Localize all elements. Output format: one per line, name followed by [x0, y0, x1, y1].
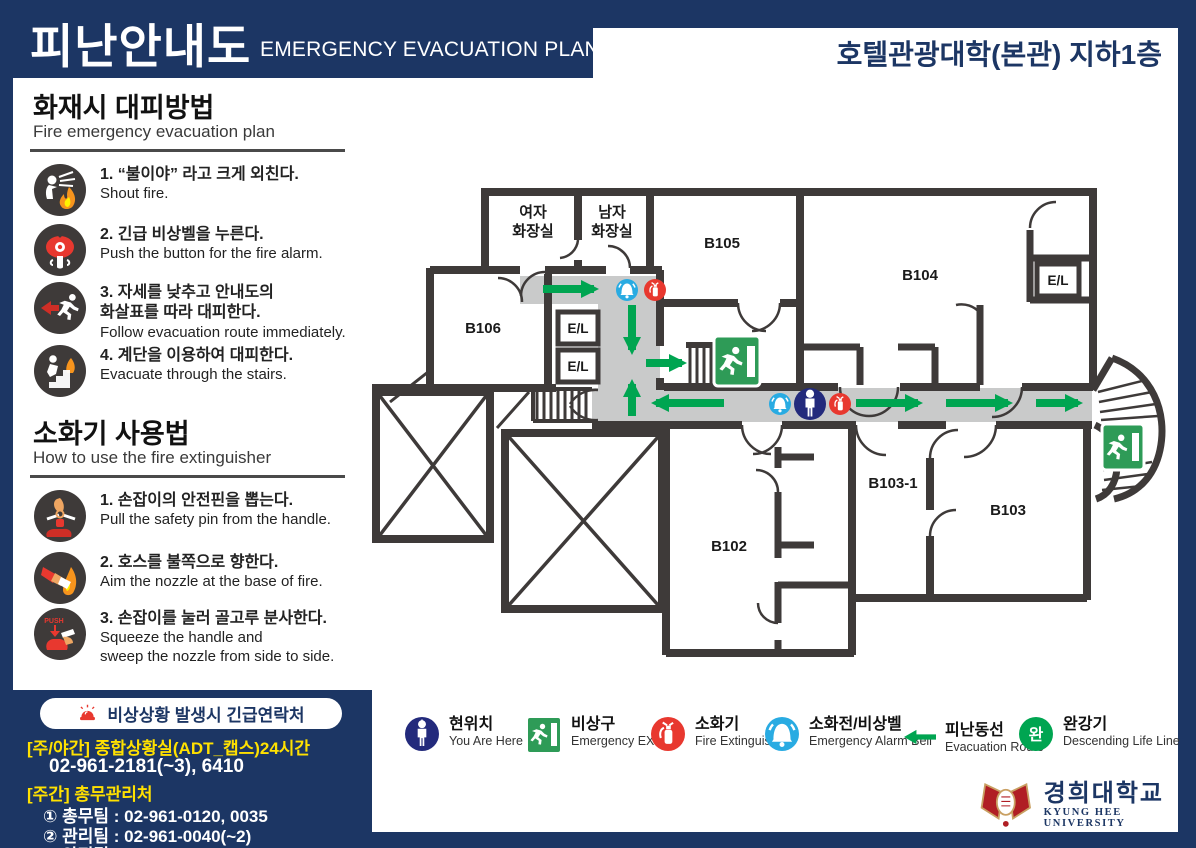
university-crest-icon: [978, 778, 1034, 832]
poster-title-english: EMERGENCY EVACUATION PLAN: [260, 38, 600, 62]
floor-plan: E/L E/L E/L: [355, 182, 1175, 682]
room-label-men: 화장실: [591, 222, 632, 240]
step-text-ko: 3. 자세를 낮추고 안내도의 화살표를 따라 대피한다.: [100, 283, 346, 324]
poster-title-korean: 피난안내도: [30, 8, 251, 77]
fire-step-1: 1. “불이야” 라고 크게 외친다. Shout fire.: [33, 163, 358, 217]
shout-fire-icon: [33, 163, 87, 217]
room-label-women: 화장실: [512, 222, 553, 240]
emergency-exit-icon: [526, 716, 562, 754]
fire-extinguisher-marker: [644, 279, 666, 301]
room-label-b102: B102: [711, 538, 747, 555]
aim-nozzle-icon: [33, 551, 87, 605]
emergency-contact-box: 비상상황 발생시 긴급연락처 [주/야간] 종합상황실(ADT_캡스)24시간 …: [13, 690, 372, 848]
section-divider: [30, 149, 345, 152]
svg-text:완: 완: [1029, 726, 1044, 744]
emergency-contact-title-pill: 비상상황 발생시 긴급연락처: [40, 698, 342, 729]
extinguisher-title: 소화기 사용법: [33, 412, 190, 451]
alarm-bell-marker: [616, 279, 638, 301]
elevator-label: E/L: [567, 321, 588, 336]
room-label-b106: B106: [465, 320, 501, 337]
extinguisher-subtitle: How to use the fire extinguisher: [33, 448, 271, 468]
step-text-ko: 3. 손잡이를 눌러 골고루 분사한다.: [100, 609, 334, 629]
section-divider: [30, 475, 345, 478]
room-label-women: 여자: [519, 204, 547, 221]
contact-line: 02-961-2181(~3), 6410: [49, 756, 244, 778]
fire-step-4: 4. 계단을 이용하여 대피한다. Evacuate through the s…: [33, 344, 358, 398]
university-name-korean: 경희대학교: [1044, 781, 1196, 806]
extinguisher-step-1: 1. 손잡이의 안전핀을 뽑는다. Pull the safety pin fr…: [33, 489, 358, 543]
left-border: [0, 0, 13, 848]
you-are-here-marker: [794, 388, 826, 420]
step-text-ko: 4. 계단을 이용하여 대피한다.: [100, 346, 293, 366]
evacuation-plan-poster: 피난안내도 EMERGENCY EVACUATION PLAN 호텔관광대학(본…: [0, 0, 1196, 848]
fire-evacuation-title: 화재시 대피방법: [33, 86, 214, 125]
descending-life-line-icon: 완: [1018, 716, 1054, 752]
siren-icon: [77, 703, 98, 724]
step-text-ko: 2. 긴급 비상벨을 누른다.: [100, 225, 323, 245]
pull-pin-icon: [33, 489, 87, 543]
you-are-here-icon: [404, 716, 440, 752]
step-text-en: Aim the nozzle at the base of fire.: [100, 573, 323, 591]
alarm-bell-icon: [764, 716, 800, 752]
step-text-en: Squeeze the handle and sweep the nozzle …: [100, 629, 334, 666]
alarm-bell-marker: [769, 393, 791, 415]
alarm-button-icon: [33, 223, 87, 277]
step-text-en: Pull the safety pin from the handle.: [100, 511, 331, 529]
fire-extinguisher-marker: [829, 393, 851, 415]
fire-evacuation-subtitle: Fire emergency evacuation plan: [33, 122, 275, 142]
step-text-en: Shout fire.: [100, 185, 299, 203]
step-text-ko: 2. 호스를 불쪽으로 향한다.: [100, 553, 323, 573]
room-label-b104: B104: [902, 267, 939, 284]
contact-line: ③ 안전팀 : 02-961-0119: [43, 841, 220, 848]
building-floor-title-box: 호텔관광대학(본관) 지하1층: [593, 28, 1178, 78]
step-text-en: Evacuate through the stairs.: [100, 366, 293, 384]
emergency-contact-title: 비상상황 발생시 긴급연락처: [107, 701, 304, 726]
follow-route-icon: [33, 281, 87, 335]
legend-you-are-here: 현위치You Are Here: [404, 716, 523, 752]
step-text-ko: 1. 손잡이의 안전핀을 뽑는다.: [100, 491, 331, 511]
building-floor-title: 호텔관광대학(본관) 지하1층: [837, 33, 1162, 73]
room-label-b103: B103: [990, 502, 1026, 519]
step-text-en: Follow evacuation route immediately.: [100, 324, 346, 342]
step-text-ko: 1. “불이야” 라고 크게 외친다.: [100, 165, 299, 185]
emergency-exit-sign-east: [1102, 424, 1144, 470]
elevator-label: E/L: [1047, 273, 1068, 288]
step-text-en: Push the button for the fire alarm.: [100, 245, 323, 263]
legend-emergency-exit: 비상구Emergency EXIT: [526, 716, 665, 754]
squeeze-handle-icon: PUSH: [33, 607, 87, 661]
room-label-b103-1: B103-1: [868, 475, 917, 492]
right-border: [1178, 0, 1196, 848]
elevator-label: E/L: [567, 359, 588, 374]
emergency-exit-sign-center: [714, 336, 760, 386]
room-label-b105: B105: [704, 235, 740, 252]
use-stairs-icon: [33, 344, 87, 398]
extinguisher-step-3: PUSH 3. 손잡이를 눌러 골고루 분사한다. Squeeze the ha…: [33, 607, 358, 666]
fire-extinguisher-icon: [650, 716, 686, 752]
svg-text:PUSH: PUSH: [44, 618, 63, 625]
extinguisher-step-2: 2. 호스를 불쪽으로 향한다. Aim the nozzle at the b…: [33, 551, 358, 605]
fire-step-2: 2. 긴급 비상벨을 누른다. Push the button for the …: [33, 223, 358, 277]
legend-descending-life-line: 완 완강기Descending Life Line: [1018, 716, 1180, 752]
room-label-men: 남자: [598, 204, 626, 221]
university-logo: 경희대학교 KYUNG HEE UNIVERSITY: [978, 778, 1196, 832]
university-name-english: KYUNG HEE UNIVERSITY: [1044, 807, 1196, 829]
fire-step-3: 3. 자세를 낮추고 안내도의 화살표를 따라 대피한다. Follow eva…: [33, 281, 358, 342]
evacuation-route-arrow-icon: [904, 726, 936, 748]
header-bar: 피난안내도 EMERGENCY EVACUATION PLAN 호텔관광대학(본…: [0, 0, 1196, 78]
